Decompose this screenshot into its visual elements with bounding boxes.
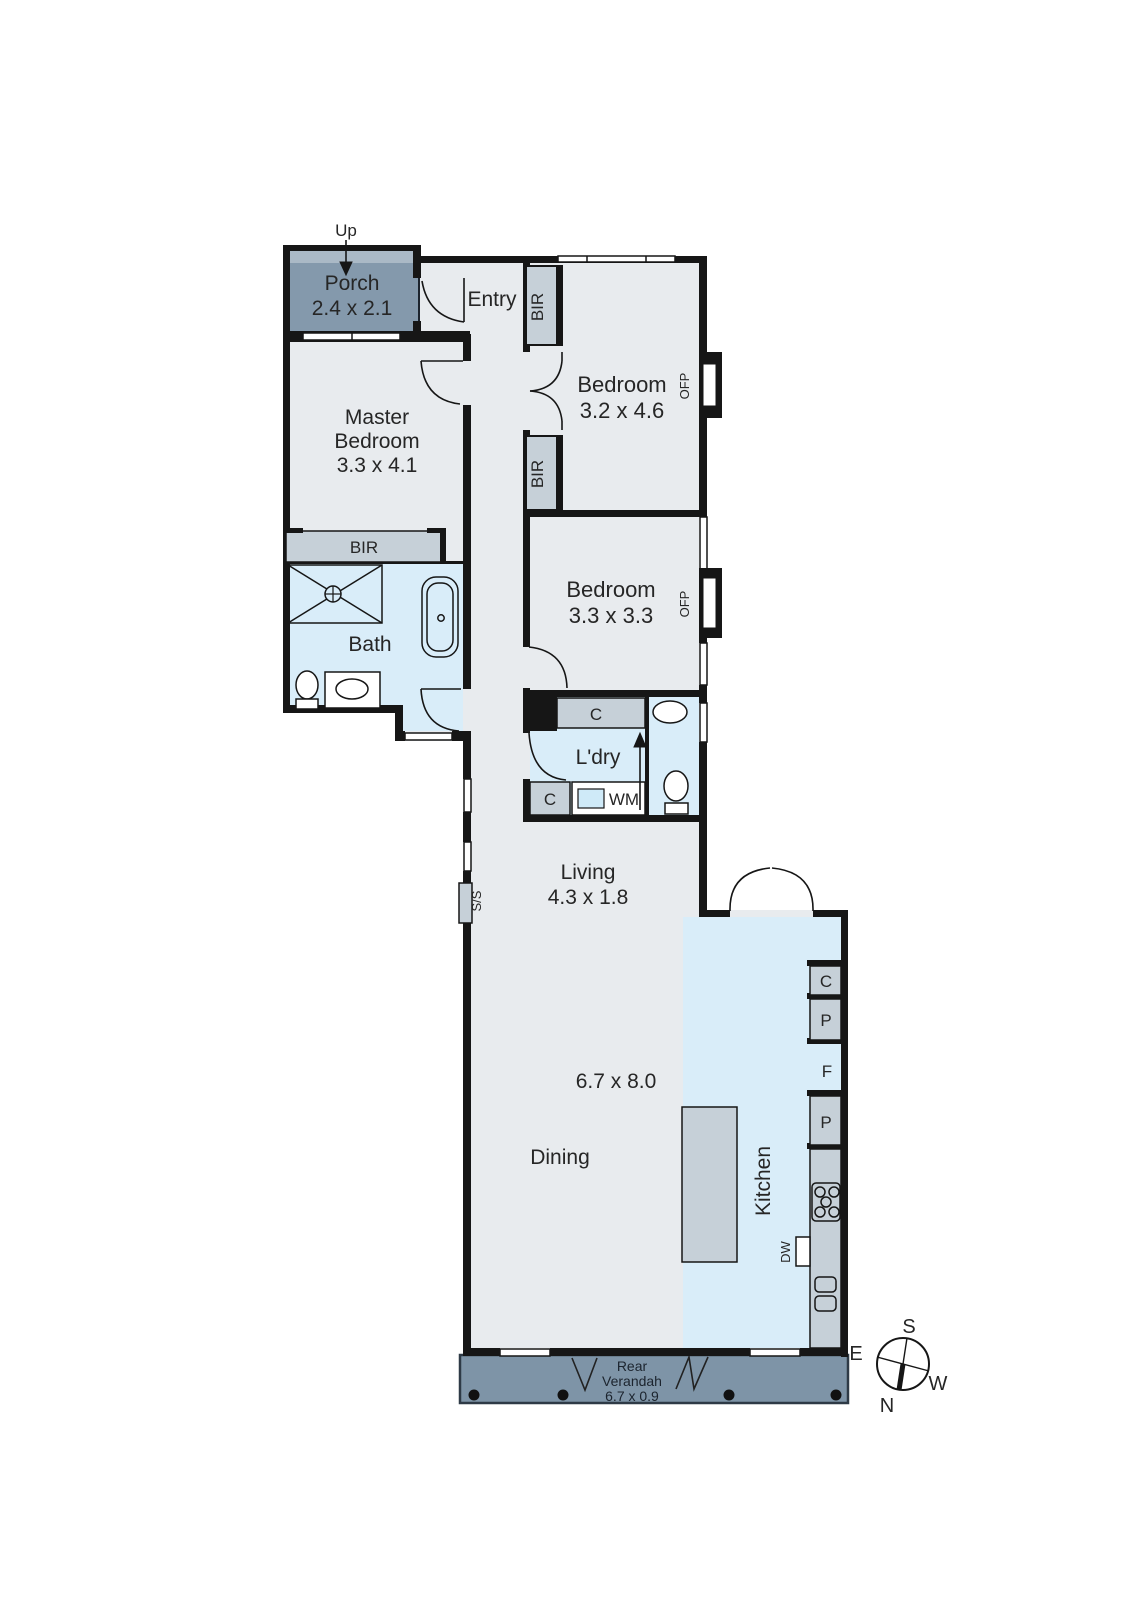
kitchen-pantry-upper-label: P bbox=[820, 1011, 831, 1030]
master-label-2: Bedroom bbox=[334, 430, 419, 453]
verandah-label-2: Verandah bbox=[602, 1373, 662, 1389]
floorplan-page: S E W N Up Porch 2.4 x 2.1 Entry BIR BIR… bbox=[0, 0, 1131, 1600]
verandah-post bbox=[831, 1390, 842, 1401]
floorplan-drawing: S E W N Up Porch 2.4 x 2.1 Entry BIR BIR… bbox=[0, 0, 1131, 1600]
washing-machine-label: WM bbox=[609, 790, 639, 809]
window bbox=[558, 256, 675, 262]
washing-machine-icon bbox=[578, 789, 604, 808]
porch-dims: 2.4 x 2.1 bbox=[312, 297, 393, 320]
bir-wall bbox=[556, 266, 563, 345]
living-label: Living bbox=[561, 861, 616, 884]
window bbox=[700, 643, 707, 685]
verandah-post bbox=[558, 1390, 569, 1401]
bir-wall-cap bbox=[286, 528, 303, 533]
laundry-label: L'dry bbox=[576, 746, 621, 769]
bir1-bottom-label: BIR bbox=[528, 460, 547, 488]
window bbox=[750, 1349, 800, 1356]
living-dims: 4.3 x 1.8 bbox=[548, 886, 629, 909]
kitchen-island bbox=[682, 1107, 737, 1262]
compass-west-label: W bbox=[929, 1373, 948, 1395]
ofp-firebox bbox=[703, 578, 716, 628]
window bbox=[464, 842, 471, 871]
dishwasher-label: DW bbox=[778, 1240, 793, 1262]
master-label-1: Master bbox=[345, 406, 409, 429]
french-doors bbox=[730, 868, 813, 911]
bath-label: Bath bbox=[348, 633, 391, 656]
bedroom1-dims: 3.2 x 4.6 bbox=[580, 398, 664, 423]
bir-master-label: BIR bbox=[350, 538, 378, 557]
up-label: Up bbox=[335, 221, 357, 240]
dishwasher-box bbox=[796, 1237, 810, 1266]
compass-north-label: N bbox=[880, 1395, 894, 1417]
open-plan-dims: 6.7 x 8.0 bbox=[576, 1070, 657, 1093]
verandah-label-1: Rear bbox=[617, 1358, 648, 1374]
bedroom1-label: Bedroom bbox=[577, 372, 666, 397]
laundry-flue-block bbox=[523, 697, 557, 731]
kitchen-bench bbox=[810, 1149, 841, 1348]
vanity-basin bbox=[325, 672, 380, 708]
compass-south-label: S bbox=[902, 1316, 915, 1338]
laundry-cupboard-bottom-label: C bbox=[544, 790, 556, 809]
ofp2-label: OFP bbox=[677, 591, 692, 618]
dining-label: Dining bbox=[530, 1146, 590, 1169]
kitchen-cupboard-label: C bbox=[820, 972, 832, 991]
verandah-post bbox=[469, 1390, 480, 1401]
window bbox=[700, 703, 707, 742]
window bbox=[700, 517, 707, 570]
entry-label: Entry bbox=[467, 288, 517, 311]
bedroom2-label: Bedroom bbox=[566, 577, 655, 602]
bir-wall bbox=[556, 436, 563, 510]
wc-basin bbox=[653, 701, 687, 723]
bedroom2-dims: 3.3 x 3.3 bbox=[569, 603, 653, 628]
verandah-post bbox=[724, 1390, 735, 1401]
ss-label: S/S bbox=[469, 890, 484, 911]
compass: S E W N bbox=[849, 1316, 947, 1417]
toilet-bath bbox=[296, 671, 318, 709]
window bbox=[405, 733, 452, 740]
kitchen-pantry-lower-label: P bbox=[820, 1113, 831, 1132]
window bbox=[500, 1349, 550, 1356]
master-dims: 3.3 x 4.1 bbox=[337, 454, 418, 477]
window bbox=[464, 779, 471, 812]
ofp-firebox bbox=[703, 364, 716, 406]
ofp1-label: OFP bbox=[677, 373, 692, 400]
toilet-wc bbox=[664, 771, 688, 814]
porch-label: Porch bbox=[325, 272, 380, 295]
kitchen-fridge-label: F bbox=[822, 1062, 832, 1081]
laundry-cupboard-top-label: C bbox=[590, 705, 602, 724]
bir1-top-label: BIR bbox=[528, 293, 547, 321]
kitchen-label: Kitchen bbox=[752, 1146, 775, 1216]
compass-east-label: E bbox=[849, 1343, 862, 1365]
verandah-dims: 6.7 x 0.9 bbox=[605, 1388, 659, 1404]
bir-wall-cap bbox=[440, 530, 446, 563]
